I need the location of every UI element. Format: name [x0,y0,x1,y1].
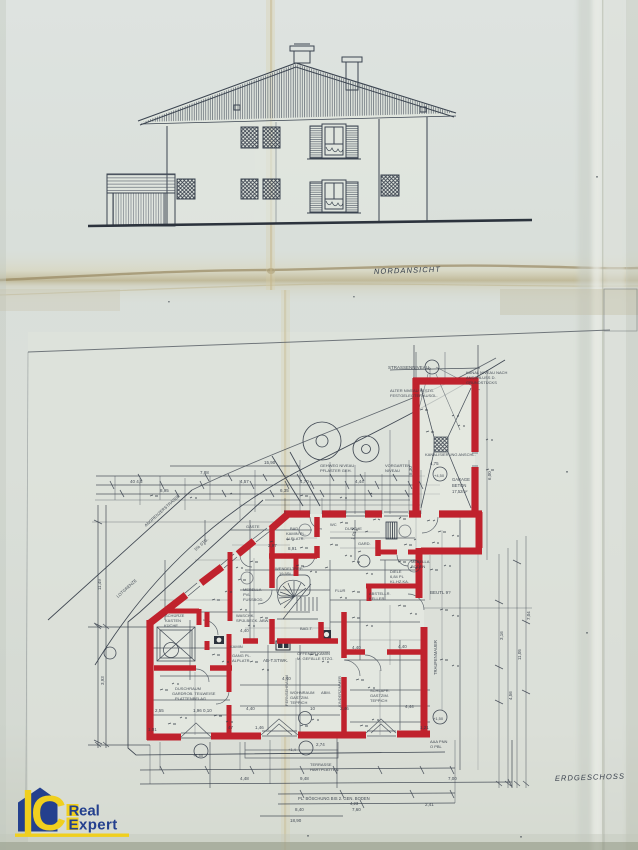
svg-text:TRAUFENMAUER: TRAUFENMAUER [433,640,438,675]
svg-text:2,74: 2,74 [316,742,325,747]
svg-text:18,90: 18,90 [290,818,302,823]
svg-text:FUSSBOD.: FUSSBOD. [243,597,263,602]
svg-text:+1,4: +1,4 [288,747,297,752]
svg-text:2,97: 2,97 [268,543,277,548]
svg-text:SPÜLBECK. ABW.: SPÜLBECK. ABW. [236,618,269,623]
svg-text:4,40: 4,40 [240,628,249,633]
svg-text:4,23: 4,23 [350,801,359,806]
svg-text:ALPLATR.: ALPLATR. [232,658,251,663]
svg-text:ABM.: ABM. [321,690,331,695]
svg-text:11,05: 11,05 [517,649,522,660]
svg-text:3,16: 3,16 [499,631,504,640]
svg-text:O PBL: O PBL [430,744,443,749]
svg-text:7,60: 7,60 [352,807,361,812]
svg-text:KÜCHE: KÜCHE [164,623,178,628]
svg-text:PFLASTER GEH.: PFLASTER GEH. [320,468,352,473]
svg-text:KL.HZ.KA.: KL.HZ.KA. [390,579,409,584]
svg-text:GÄSTE: GÄSTE [246,524,260,529]
svg-text:9,48: 9,48 [300,776,309,781]
svg-text:NIVEAU: NIVEAU [385,468,400,473]
svg-text:4,70: 4,70 [300,479,309,484]
svg-text:TEPPICH: TEPPICH [370,698,387,703]
svg-text:4,40: 4,40 [246,706,255,711]
svg-text:17,52m²: 17,52m² [452,489,468,494]
svg-text:6,00: 6,00 [487,471,492,480]
svg-text:WC: WC [330,522,337,527]
svg-text:FLUR: FLUR [335,588,346,593]
svg-text:TEPPICH: TEPPICH [290,700,307,705]
svg-text:KELLER: KELLER [369,596,384,601]
svg-text:PL. BÖSCHUNG BIS 2. GEN. BODEN: PL. BÖSCHUNG BIS 2. GEN. BODEN [298,796,370,801]
svg-text:7,00: 7,00 [448,776,457,781]
svg-text:4,48: 4,48 [240,776,249,781]
svg-text:11,49: 11,49 [97,579,102,590]
svg-text:BODEN: BODEN [411,564,425,569]
svg-text:7,04: 7,04 [526,611,531,620]
svg-text:8,30: 8,30 [408,466,413,475]
svg-text:KINDERZIMMER: KINDERZIMMER [337,676,342,707]
svg-text:4,44: 4,44 [405,704,414,709]
svg-text:DUSCHE: DUSCHE [345,526,362,531]
svg-text:BETON: BETON [452,483,466,488]
svg-text:40 4,5: 40 4,5 [130,479,143,484]
svg-text:8,91: 8,91 [288,546,297,551]
svg-text:2,41: 2,41 [425,802,434,807]
svg-text:+1,50: +1,50 [433,716,444,721]
svg-text:4,57: 4,57 [240,479,249,484]
svg-text:4,75: 4,75 [430,461,439,466]
svg-text:STRASSENNIVEAU: STRASSENNIVEAU [388,365,429,370]
svg-text:7,88: 7,88 [200,470,209,475]
svg-text:47: 47 [228,725,234,730]
svg-text:KAMIN: KAMIN [230,644,243,649]
svg-text:8,40: 8,40 [295,807,304,812]
svg-text:GARAGE: GARAGE [452,477,470,482]
svg-text:19,5St: 19,5St [279,571,291,576]
svg-text:GARD.: GARD. [358,541,371,546]
svg-text:+1,50: +1,50 [193,753,204,758]
svg-text:8,95: 8,95 [160,488,169,493]
svg-text:15,90: 15,90 [264,460,276,465]
svg-text:4,40: 4,40 [352,645,361,650]
svg-text:4,56: 4,56 [508,691,513,700]
svg-text:KANALISIERUNG ANSCHL.: KANALISIERUNG ANSCHL. [425,452,476,457]
svg-text:1,96 0,10: 1,96 0,10 [193,708,212,713]
svg-text:10: 10 [310,706,316,711]
svg-text:BAD-T.: BAD-T. [300,626,313,631]
svg-text:BEUTL 9?: BEUTL 9? [430,590,451,595]
svg-text:FESTGELEGTER AUSGL.: FESTGELEGTER AUSGL. [390,393,438,398]
svg-text:PLATTENBELAG: PLATTENBELAG [175,696,206,701]
svg-text:HARTPLATTEN: HARTPLATTEN [310,767,339,772]
svg-text:2,55: 2,55 [155,708,164,713]
svg-text:GRUNDSTÜCKS: GRUNDSTÜCKS [466,380,497,385]
svg-text:1,46: 1,46 [255,725,264,730]
svg-text:+0: +0 [426,366,431,371]
svg-text:FERNSEHRAUM: FERNSEHRAUM [284,675,289,706]
svg-text:4,40: 4,40 [398,644,407,649]
svg-text:+4,50: +4,50 [434,473,445,478]
svg-text:C: C [31,787,66,841]
svg-text:M. GEFÄLLE STZG.: M. GEFÄLLE STZG. [297,656,333,661]
svg-text:AB-T.STWK.: AB-T.STWK. [263,658,288,663]
svg-text:ALPLATR.: ALPLATR. [286,536,305,541]
svg-text:3,93: 3,93 [100,676,105,685]
svg-text:E: E [69,817,79,834]
svg-text:xpert: xpert [79,817,118,834]
svg-text:1,01: 1,01 [148,727,157,732]
svg-text:1,21: 1,21 [420,725,429,730]
svg-text:6,35: 6,35 [280,488,289,493]
svg-text:4,44: 4,44 [355,479,364,484]
